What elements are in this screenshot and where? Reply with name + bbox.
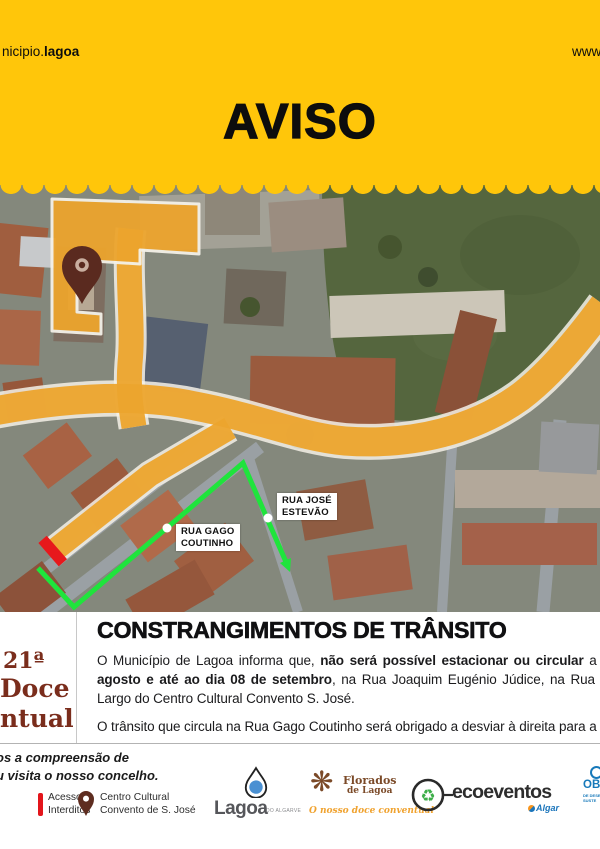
brand-prefix: nicipio.: [2, 44, 44, 59]
notice-section: CONSTRANGIMENTOS DE TRÂNSITO O Município…: [97, 612, 600, 743]
svg-text:♻: ♻: [420, 787, 435, 806]
legend-centro-cultural: Centro Cultural Convento de S. José: [100, 791, 196, 817]
street-label-rua-gago-coutinho: RUA GAGO COUTINHO: [176, 524, 240, 551]
map-pin-icon: [77, 790, 95, 817]
event-logo-line1: 21ª: [3, 648, 44, 674]
street-label-rua-jose-estevao: RUA JOSÉ ESTEVÃO: [277, 493, 337, 520]
thanks-text: os a compreensão de u visita o nosso con…: [0, 749, 159, 785]
page-title: AVISO: [0, 94, 600, 150]
no-access-bar-icon: [38, 793, 43, 816]
header: nicipio.lagoa www. AVISO: [0, 0, 600, 186]
event-logo: 21ª Doce ntual: [0, 612, 77, 743]
algar-logo: Algar: [528, 803, 559, 813]
notice-paragraph2: O trânsito que circula na Rua Gago Couti…: [97, 717, 600, 736]
recycle-icon: ♻: [411, 777, 455, 813]
algar-icon: [528, 805, 535, 812]
ecoeventos-logo-text: ecoeventos: [452, 781, 551, 804]
lagoa-logo-text: Lagoa: [214, 798, 267, 820]
rosette-icon: ❋: [310, 768, 333, 796]
ods-circle-icon: [590, 766, 600, 779]
map-graphics: [0, 185, 600, 612]
municipality-brand: nicipio.lagoa: [2, 44, 79, 59]
brand-bold: lagoa: [44, 44, 79, 59]
notice-heading: CONSTRANGIMENTOS DE TRÂNSITO: [97, 617, 600, 644]
event-logo-line2: Doce: [0, 674, 69, 703]
event-logo-line3: ntual: [0, 704, 74, 733]
footer: os a compreensão de u visita o nosso con…: [0, 743, 600, 849]
water-drop-icon: [243, 766, 269, 798]
florados-logo-line2: de Lagoa: [347, 786, 392, 796]
website-url: www.: [572, 44, 600, 59]
poster: nicipio.lagoa www. AVISO: [0, 0, 600, 849]
scalloped-edge: [0, 185, 600, 196]
lagoa-logo-subtext: DO ALGARVE: [266, 808, 301, 814]
notice-paragraph1-line3: Largo do Centro Cultural Convento S. Jos…: [97, 689, 600, 708]
aerial-map: RUA JOSÉ ESTEVÃO RUA GAGO COUTINHO: [0, 185, 600, 612]
notice-paragraph1-line1: O Município de Lagoa informa que, não se…: [97, 651, 600, 670]
notice-paragraph1-line2: agosto e até ao dia 08 de setembro, na R…: [97, 670, 600, 689]
